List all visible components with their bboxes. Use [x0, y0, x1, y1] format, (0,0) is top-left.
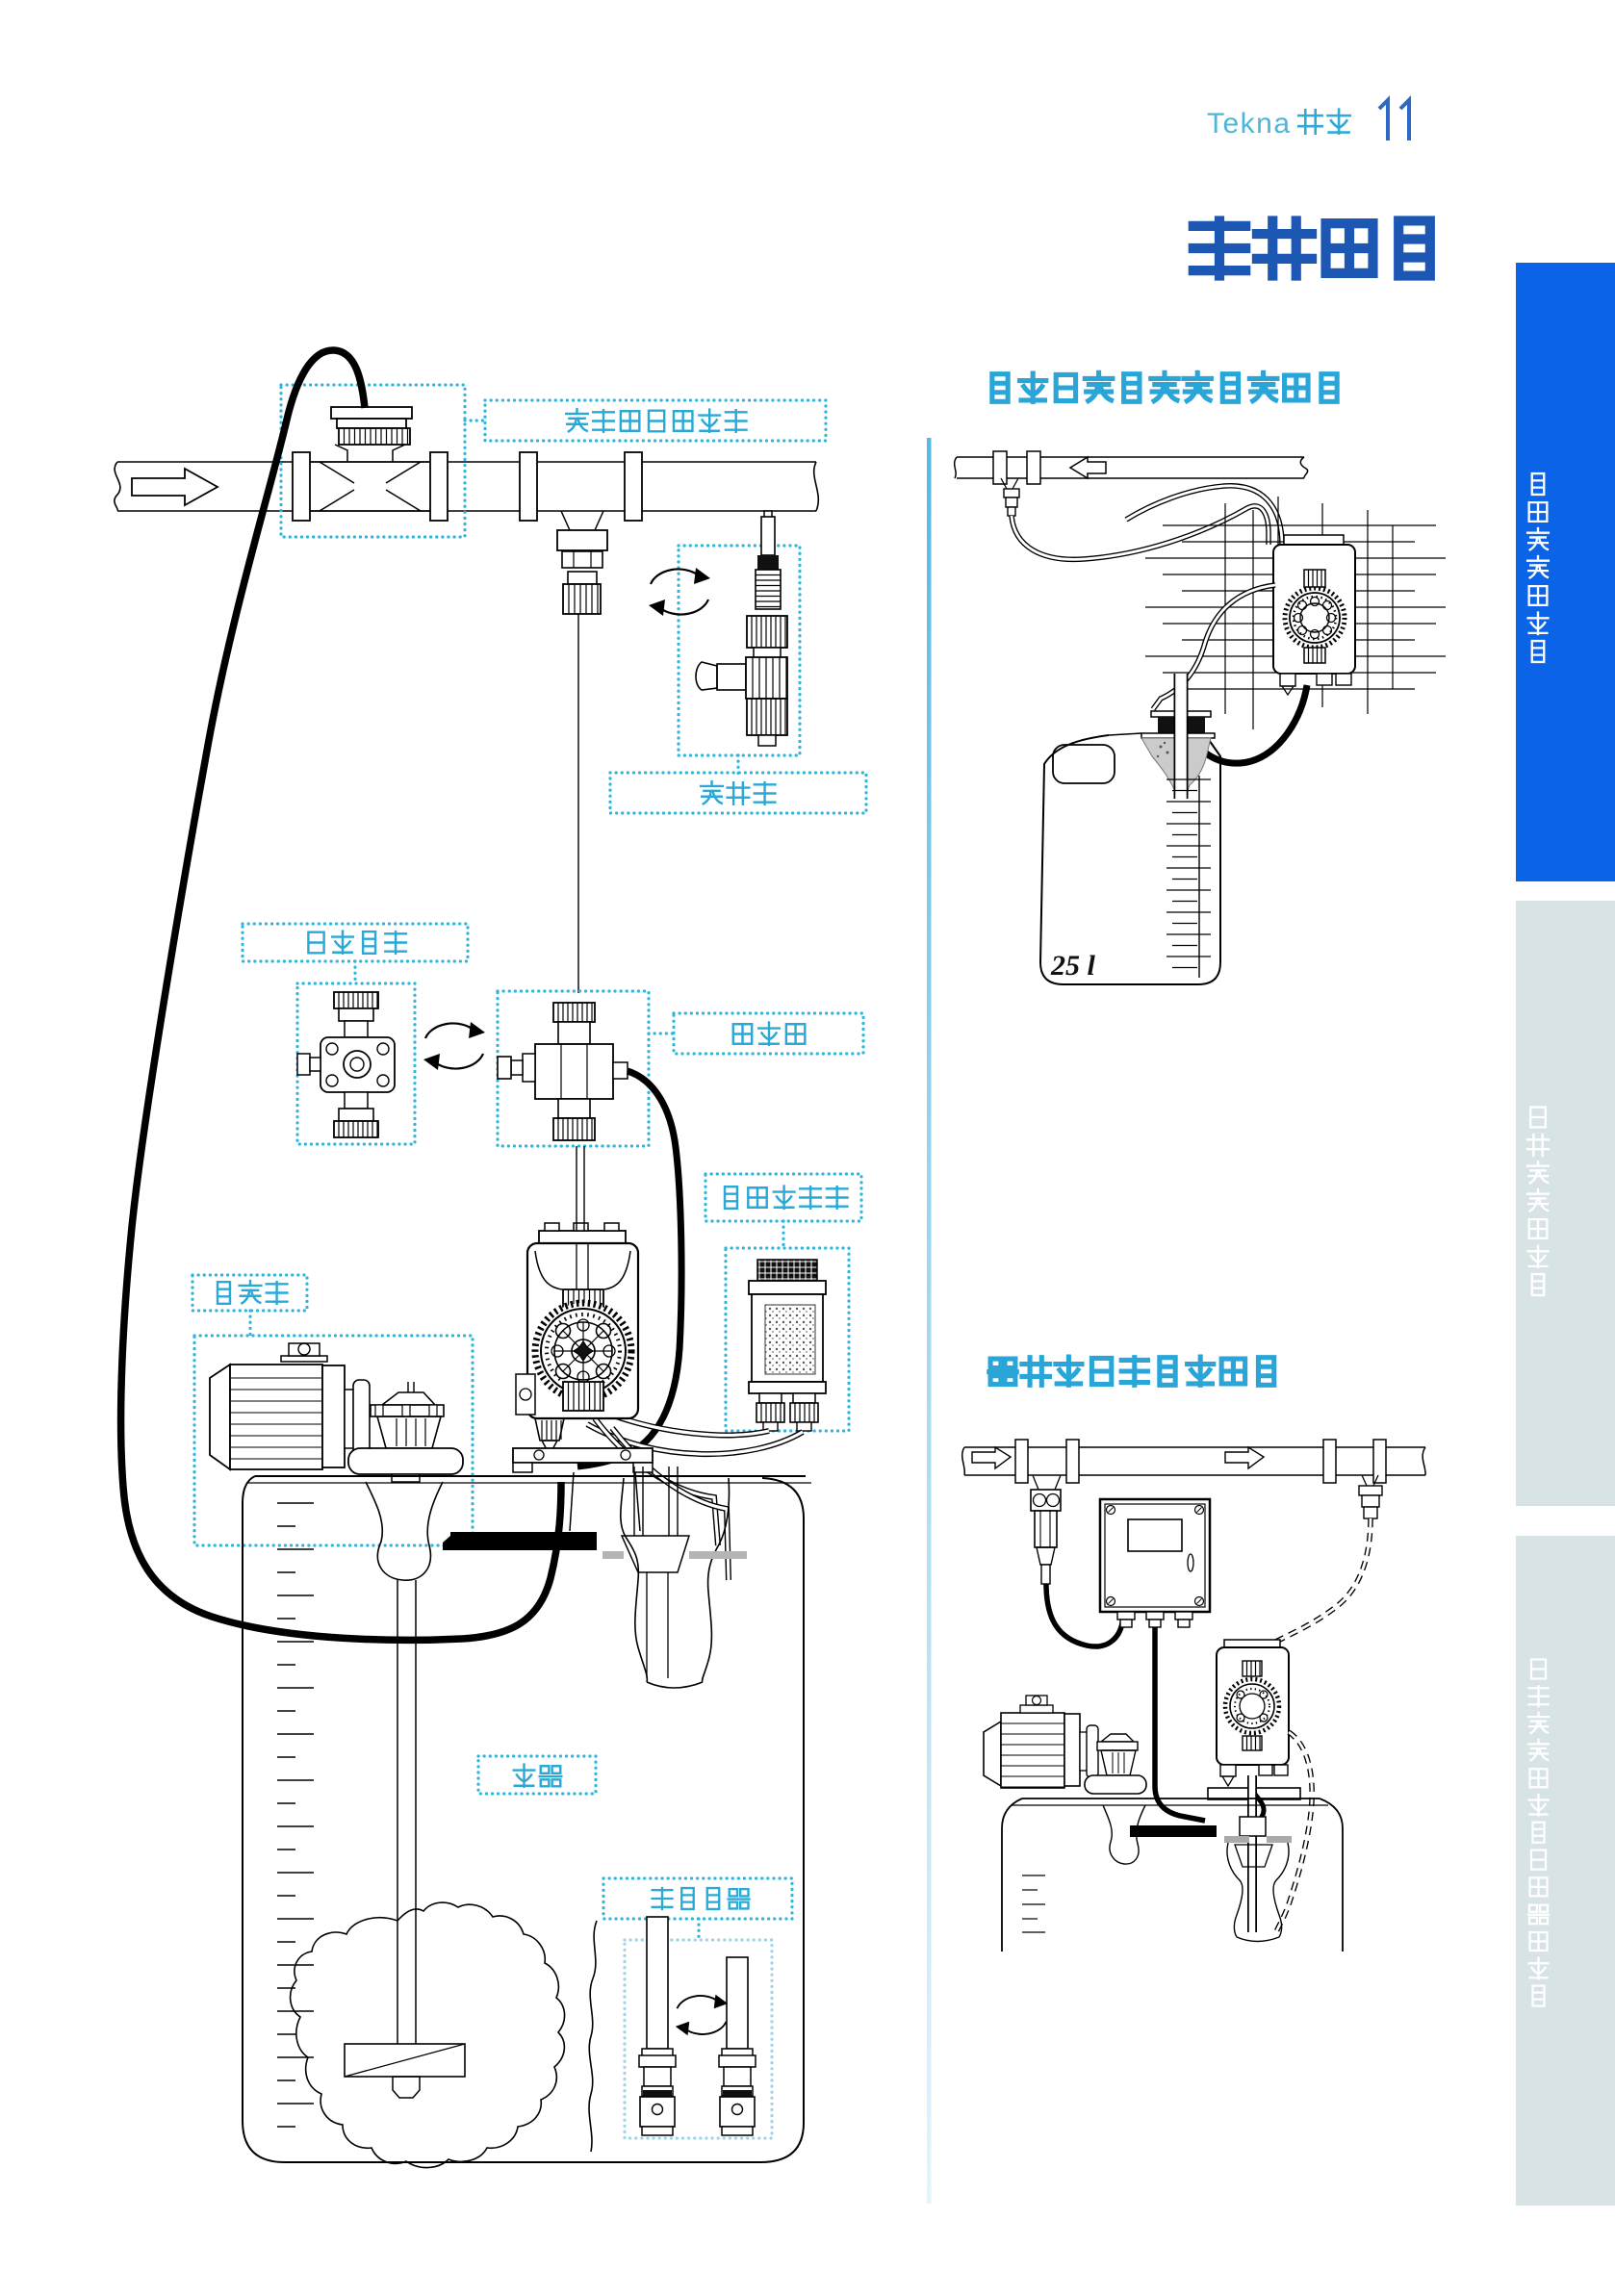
svg-text:Tekna: Tekna — [1207, 108, 1292, 140]
svg-text:25 l: 25 l — [1050, 950, 1096, 982]
